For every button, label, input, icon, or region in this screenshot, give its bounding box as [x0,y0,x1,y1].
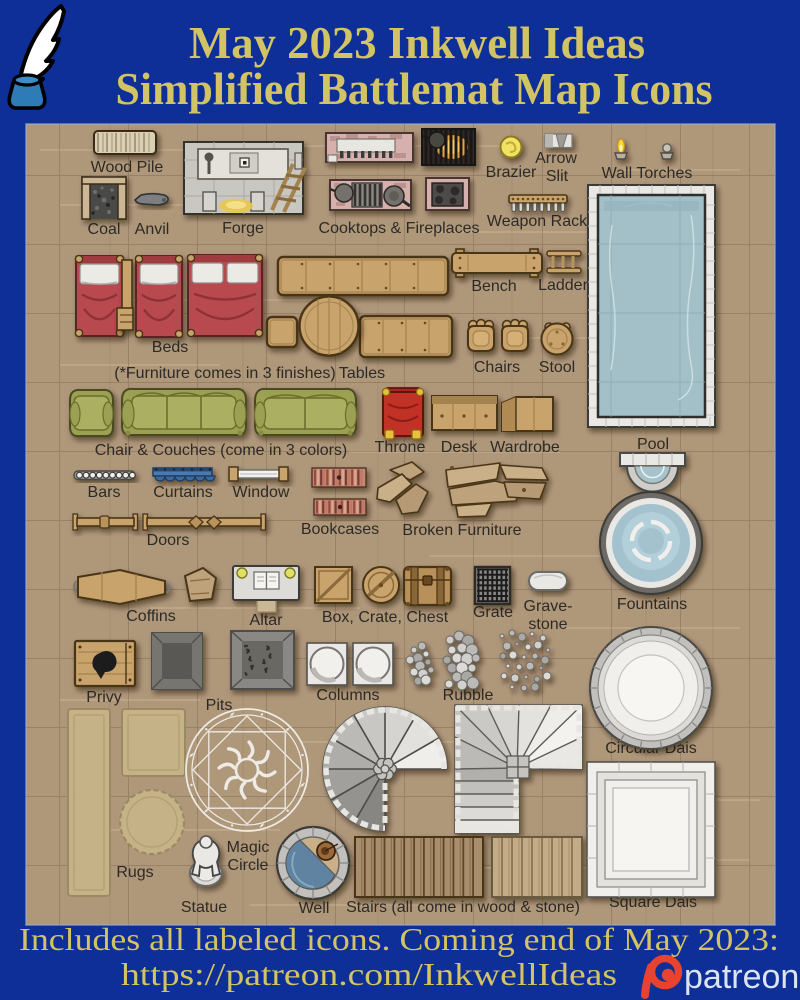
svg-text:Grave-: Grave- [524,598,573,615]
svg-text:Doors: Doors [147,532,190,549]
svg-text:Circle: Circle [228,857,269,874]
svg-text:Broken Furniture: Broken Furniture [402,522,521,539]
svg-text:Chair & Couches (come in 3 col: Chair & Couches (come in 3 colors) [95,442,348,459]
svg-text:Tables: Tables [339,365,385,382]
svg-text:Curtains: Curtains [153,484,213,501]
svg-text:Window: Window [233,484,290,501]
svg-text:Altar: Altar [250,612,284,629]
svg-text:Coffins: Coffins [126,608,176,625]
svg-text:Cooktops & Fireplaces: Cooktops & Fireplaces [319,220,480,237]
svg-text:Slit: Slit [546,168,569,185]
svg-text:Fountains: Fountains [617,596,687,613]
svg-text:Throne: Throne [375,439,426,456]
svg-text:Rugs: Rugs [116,864,153,881]
svg-text:Beds: Beds [152,339,188,356]
svg-text:Arrow: Arrow [535,150,577,167]
svg-text:patreon: patreon [684,958,799,996]
svg-text:Wood Pile: Wood Pile [91,159,164,176]
svg-text:May 2023 Inkwell Ideas: May 2023 Inkwell Ideas [189,17,645,68]
svg-text:Anvil: Anvil [135,221,170,238]
svg-text:Coal: Coal [88,221,121,238]
svg-text:Grate: Grate [473,604,513,621]
svg-text:Stairs (all come in wood & sto: Stairs (all come in wood & stone) [346,899,580,916]
svg-text:Wardrobe: Wardrobe [490,439,560,456]
svg-text:Rubble: Rubble [443,687,494,704]
svg-text:Stool: Stool [539,359,575,376]
svg-text:https://patreon.com/InkwellIde: https://patreon.com/InkwellIdeas [121,956,617,992]
svg-text:Box, Crate, Chest: Box, Crate, Chest [322,609,449,626]
svg-text:stone: stone [528,616,567,633]
svg-text:Privy: Privy [86,689,122,706]
svg-text:Columns: Columns [316,687,379,704]
svg-text:Forge: Forge [222,220,264,237]
svg-text:Desk: Desk [441,439,478,456]
svg-text:(*Furniture comes in 3 finishe: (*Furniture comes in 3 finishes) [114,365,335,382]
svg-text:Statue: Statue [181,899,227,916]
svg-text:Includes all labeled icons. Co: Includes all labeled icons. Coming end o… [19,921,779,957]
svg-text:Simplified Battlemat Map Icons: Simplified Battlemat Map Icons [116,63,713,114]
svg-text:Magic: Magic [227,839,270,856]
svg-text:Chairs: Chairs [474,359,520,376]
svg-text:Bench: Bench [471,278,516,295]
svg-text:Weapon Rack: Weapon Rack [487,213,588,230]
svg-text:Well: Well [299,900,330,917]
svg-text:Wall Torches: Wall Torches [602,165,693,182]
svg-text:Bookcases: Bookcases [301,521,379,538]
svg-text:Bars: Bars [88,484,121,501]
svg-text:Brazier: Brazier [486,164,537,181]
svg-text:Pool: Pool [637,436,669,453]
svg-text:Ladder: Ladder [538,277,588,294]
